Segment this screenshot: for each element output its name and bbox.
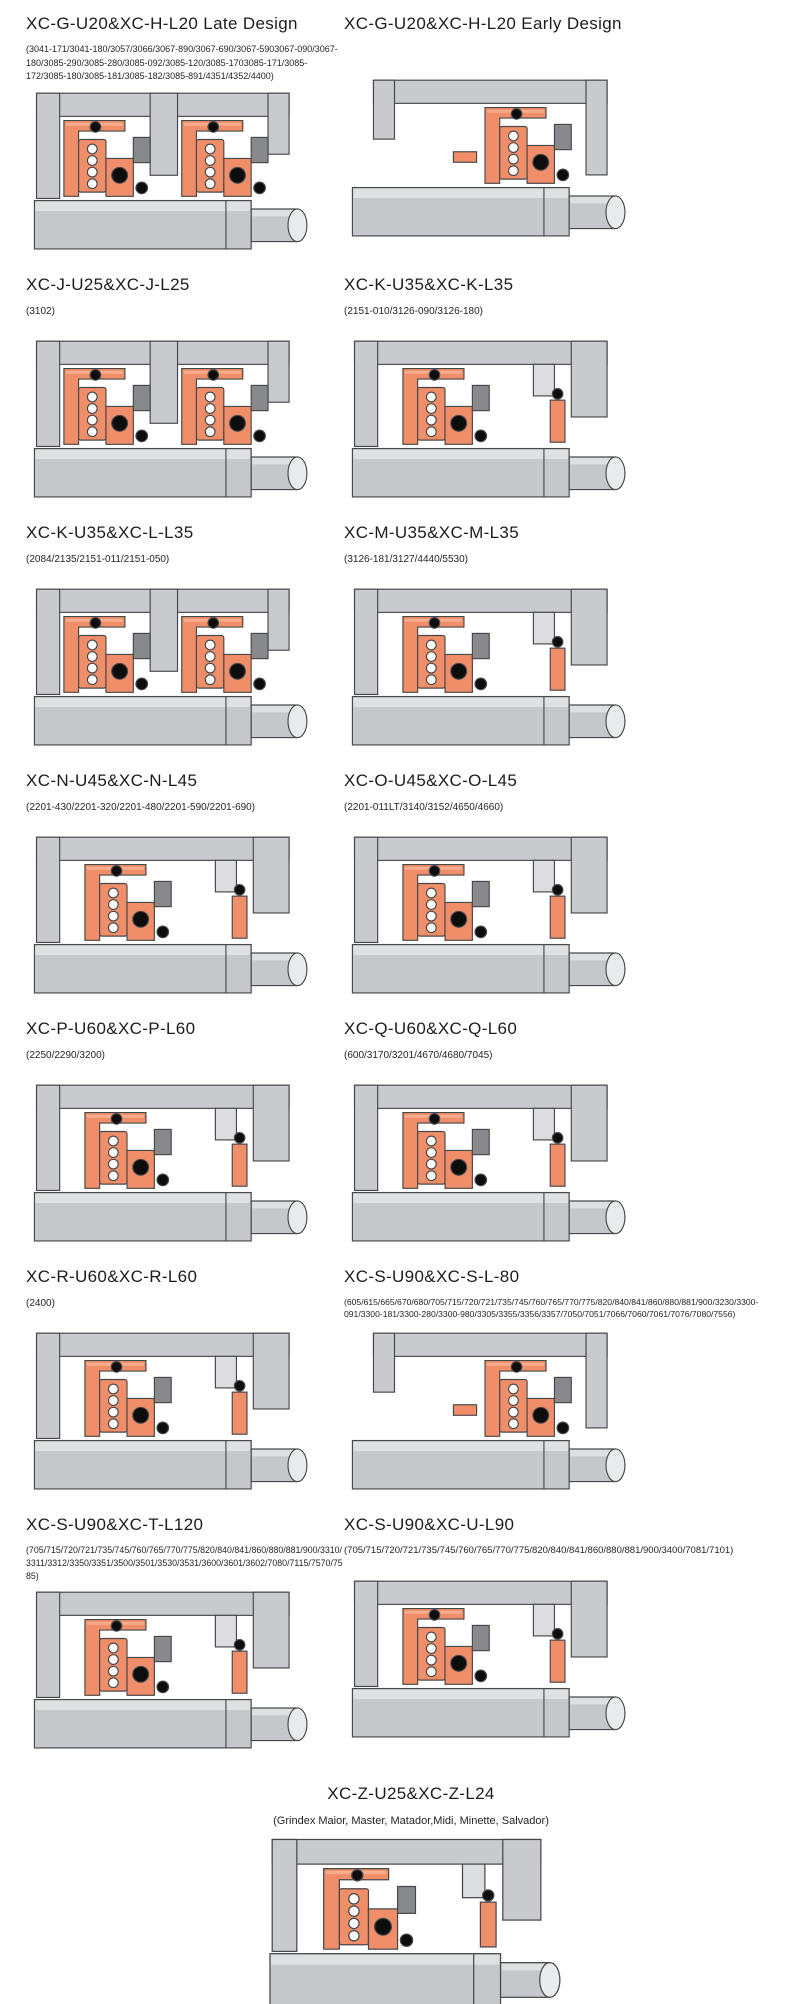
pump-housing — [37, 837, 60, 942]
pump-housing — [571, 837, 607, 913]
pump-shaft — [270, 1953, 560, 2004]
spring-coil — [426, 403, 436, 413]
pump-shaft — [352, 448, 625, 496]
drive-collar — [154, 1377, 171, 1402]
section-model-list: (3041-171/3041-180/3057/3066/3067-890/30… — [26, 43, 344, 84]
mechanical-seal-cross-section — [261, 1835, 561, 2004]
spring-coil — [87, 426, 97, 436]
section-model-list: (2201-011LT/3140/3152/4650/4660) — [344, 800, 644, 828]
o-ring — [552, 884, 563, 895]
housing-step — [533, 364, 554, 396]
section-title: XC-Q-U60&XC-Q-L60 — [344, 1019, 796, 1039]
pump-housing — [37, 341, 60, 446]
stationary-seat — [550, 1144, 565, 1186]
pump-housing — [272, 1839, 541, 1864]
spring-coil — [205, 415, 215, 425]
seal-assembly — [403, 616, 489, 692]
pump-housing — [373, 80, 607, 103]
seal-section: XC-J-U25&XC-J-L25 (3102) — [26, 269, 344, 505]
drive-collar — [133, 137, 150, 162]
spring-coil — [426, 888, 436, 898]
o-ring — [475, 1670, 487, 1682]
pump-housing — [37, 1085, 290, 1108]
seal-section: XC-G-U20&XC-H-L20 Late Design (3041-171/… — [26, 8, 344, 257]
spring-coil — [509, 1407, 519, 1417]
o-ring — [400, 1934, 412, 1946]
o-ring — [552, 1628, 563, 1639]
shaft-end-cap — [288, 208, 307, 241]
section-title: XC-G-U20&XC-H-L20 Late Design — [26, 14, 344, 34]
spring-coil — [426, 922, 436, 932]
housing-step — [533, 612, 554, 644]
pump-housing — [268, 93, 289, 154]
seal-section: XC-Q-U60&XC-Q-L60 (600/3170/3201/4670/46… — [344, 1013, 796, 1249]
section-title: XC-R-U60&XC-R-L60 — [26, 1267, 344, 1287]
section-title: XC-Z-U25&XC-Z-L24 — [327, 1784, 494, 1804]
o-ring — [511, 109, 522, 120]
pump-shaft — [352, 1192, 625, 1240]
spring-coil — [349, 1893, 359, 1903]
pump-housing — [272, 1839, 297, 1951]
section-model-list — [344, 43, 644, 71]
section-title: XC-M-U35&XC-M-L35 — [344, 523, 796, 543]
shaft-end-cap — [606, 704, 625, 737]
shaft-end-cap — [288, 456, 307, 489]
pump-shaft — [34, 696, 307, 744]
spring-coil — [108, 1678, 118, 1688]
spring-coil — [426, 426, 436, 436]
pump-housing — [571, 341, 607, 417]
spring-coil — [87, 663, 97, 673]
o-ring — [157, 1681, 169, 1693]
seal-section: XC-M-U35&XC-M-L35 (3126-181/3127/4440/55… — [344, 517, 796, 753]
spring-coil — [509, 166, 519, 176]
spring-coil — [108, 1147, 118, 1157]
drive-collar — [251, 137, 268, 162]
mechanical-seal-cross-section — [26, 337, 308, 505]
housing-step — [462, 1864, 484, 1898]
section-title: XC-K-U35&XC-L-L35 — [26, 523, 344, 543]
drive-collar — [554, 124, 571, 149]
section-model-list: (Grindex Maior, Master, Matador,Midi, Mi… — [273, 1813, 549, 1830]
section-title: XC-S-U90&XC-T-L120 — [26, 1515, 344, 1535]
pump-housing — [355, 1581, 378, 1686]
shaft-end-cap — [288, 1200, 307, 1233]
pump-housing — [355, 589, 608, 612]
spring-coil — [108, 1384, 118, 1394]
spring-coil — [509, 1384, 519, 1394]
spring-coil — [205, 674, 215, 684]
pump-housing — [37, 1333, 60, 1438]
pump-housing — [253, 1085, 289, 1161]
seal-assembly — [324, 1868, 416, 1949]
seal-assembly — [485, 108, 571, 184]
spring-coil — [87, 415, 97, 425]
stationary-seat — [550, 896, 565, 938]
drive-collar — [472, 633, 489, 658]
spring-coil — [426, 392, 436, 402]
o-ring — [230, 167, 246, 183]
pump-housing — [37, 837, 290, 860]
pump-housing — [355, 837, 378, 942]
mechanical-seal-cross-section — [26, 1081, 308, 1249]
spring-coil — [509, 131, 519, 141]
seal-assembly — [85, 864, 171, 940]
o-ring — [475, 678, 487, 690]
pump-shaft — [34, 448, 307, 496]
o-ring — [133, 1159, 149, 1175]
pump-housing — [355, 1085, 608, 1108]
pump-housing — [253, 837, 289, 913]
seal-section: XC-N-U45&XC-N-L45 (2201-430/2201-320/220… — [26, 765, 344, 1001]
mechanical-seal-cross-section — [26, 833, 308, 1001]
o-ring — [254, 430, 266, 442]
spring-coil — [108, 1407, 118, 1417]
o-ring — [157, 926, 169, 938]
o-ring — [230, 415, 246, 431]
pump-housing — [268, 341, 289, 402]
shaft-end-cap — [288, 1448, 307, 1481]
seal-assembly — [182, 120, 268, 196]
o-ring — [429, 369, 440, 380]
o-ring — [429, 1609, 440, 1620]
drive-collar — [472, 385, 489, 410]
spring-coil — [87, 651, 97, 661]
seal-assembly — [182, 368, 268, 444]
pump-housing — [37, 1592, 290, 1615]
seal-section: XC-G-U20&XC-H-L20 Early Design — [344, 8, 796, 257]
mechanical-seal-cross-section — [26, 1588, 308, 1756]
section-model-list: (2084/2135/2151-011/2151-050) — [26, 552, 326, 580]
housing-step — [215, 860, 236, 892]
stationary-seat — [550, 400, 565, 442]
mechanical-seal-cross-section — [26, 585, 308, 753]
seal-sections-grid: XC-G-U20&XC-H-L20 Late Design (3041-171/… — [0, 8, 796, 2004]
o-ring — [136, 430, 148, 442]
shaft-end-cap — [606, 1696, 625, 1729]
seal-section: XC-P-U60&XC-P-L60 (2250/2290/3200) — [26, 1013, 344, 1249]
o-ring — [557, 1422, 569, 1434]
shaft-end-cap — [606, 1200, 625, 1233]
spring-coil — [205, 640, 215, 650]
seal-assembly — [64, 616, 150, 692]
shaft-end-cap — [606, 1448, 625, 1481]
o-ring — [429, 865, 440, 876]
spring-coil — [205, 651, 215, 661]
spring-coil — [108, 1418, 118, 1428]
shaft-end-cap — [606, 456, 625, 489]
o-ring — [451, 911, 467, 927]
seal-assembly — [85, 1360, 171, 1436]
seal-section: XC-K-U35&XC-L-L35 (2084/2135/2151-011/21… — [26, 517, 344, 753]
pump-shaft — [352, 696, 625, 744]
pump-housing — [150, 589, 177, 671]
o-ring — [451, 1159, 467, 1175]
spring-coil — [426, 1170, 436, 1180]
drive-collar — [133, 633, 150, 658]
spring-coil — [108, 888, 118, 898]
spring-coil — [509, 1395, 519, 1405]
seal-section: XC-S-U90&XC-T-L120 (705/715/720/721/735/… — [26, 1509, 344, 1757]
section-title: XC-S-U90&XC-S-L-80 — [344, 1267, 796, 1287]
spring-coil — [87, 674, 97, 684]
mechanical-seal-cross-section — [344, 76, 626, 244]
section-model-list: (605/615/665/670/680/705/715/720/721/735… — [344, 1296, 796, 1324]
o-ring — [157, 1174, 169, 1186]
spring-coil — [108, 922, 118, 932]
seal-section: XC-S-U90&XC-S-L-80 (605/615/665/670/680/… — [344, 1261, 796, 1497]
seal-assembly — [182, 616, 268, 692]
pump-housing — [37, 93, 60, 198]
spring-coil — [205, 167, 215, 177]
spring-coil — [87, 403, 97, 413]
pump-housing — [355, 1085, 378, 1190]
o-ring — [451, 415, 467, 431]
o-ring — [475, 430, 487, 442]
stationary-seat — [232, 1651, 247, 1693]
o-ring — [552, 388, 563, 399]
spring-coil — [426, 1136, 436, 1146]
pump-housing — [586, 1333, 607, 1428]
o-ring — [375, 1918, 392, 1935]
pump-housing — [586, 80, 607, 175]
o-ring — [475, 1174, 487, 1186]
spring-coil — [426, 415, 436, 425]
mechanical-seal-cross-section — [344, 585, 626, 753]
pump-housing — [571, 589, 607, 665]
pump-housing — [355, 589, 378, 694]
spring-coil — [426, 674, 436, 684]
housing-step — [215, 1615, 236, 1647]
spring-coil — [108, 1655, 118, 1665]
housing-step — [215, 1108, 236, 1140]
o-ring — [90, 369, 101, 380]
pump-housing — [373, 80, 394, 139]
spring-coil — [87, 178, 97, 188]
o-ring — [234, 1380, 245, 1391]
shaft-end-cap — [606, 952, 625, 985]
o-ring — [483, 1889, 494, 1900]
shaft-end-cap — [606, 196, 625, 229]
pump-shaft — [34, 1440, 307, 1488]
pump-shaft — [352, 1688, 625, 1736]
spring-coil — [205, 392, 215, 402]
mechanical-seal-cross-section — [344, 1081, 626, 1249]
o-ring — [111, 1361, 122, 1372]
spring-coil — [205, 403, 215, 413]
shaft-end-cap — [288, 1708, 307, 1741]
seal-assembly — [403, 864, 489, 940]
pump-shaft — [34, 200, 307, 248]
o-ring — [429, 1113, 440, 1124]
section-title: XC-J-U25&XC-J-L25 — [26, 275, 344, 295]
spring-coil — [87, 167, 97, 177]
spring-coil — [349, 1906, 359, 1916]
stationary-seat — [232, 1392, 247, 1434]
shaft-end-cap — [288, 952, 307, 985]
drive-collar — [133, 385, 150, 410]
drive-collar — [472, 1129, 489, 1154]
seal-sleeve — [453, 152, 476, 163]
mechanical-seal-cross-section — [26, 1329, 308, 1497]
o-ring — [552, 636, 563, 647]
spring-coil — [426, 1147, 436, 1157]
o-ring — [208, 121, 219, 132]
pump-housing — [571, 1581, 607, 1657]
section-title: XC-S-U90&XC-U-L90 — [344, 1515, 796, 1535]
shaft-end-cap — [288, 704, 307, 737]
o-ring — [451, 663, 467, 679]
seal-assembly — [403, 368, 489, 444]
seal-assembly — [403, 1608, 489, 1684]
pump-housing — [37, 1592, 60, 1697]
section-model-list: (3126-181/3127/4440/5530) — [344, 552, 644, 580]
seal-sleeve — [453, 1404, 476, 1415]
spring-coil — [349, 1930, 359, 1940]
spring-coil — [108, 899, 118, 909]
section-title: XC-O-U45&XC-O-L45 — [344, 771, 796, 791]
seal-assembly — [403, 1112, 489, 1188]
shaft-end-cap — [540, 1962, 560, 1997]
spring-coil — [205, 178, 215, 188]
seal-assembly — [64, 368, 150, 444]
pump-housing — [150, 93, 177, 175]
spring-coil — [87, 640, 97, 650]
pump-housing — [37, 1333, 290, 1356]
catalog-page: XC-G-U20&XC-H-L20 Late Design (3041-171/… — [0, 0, 796, 2004]
spring-coil — [205, 155, 215, 165]
drive-collar — [154, 881, 171, 906]
o-ring — [254, 182, 266, 194]
pump-housing — [37, 1085, 60, 1190]
mechanical-seal-cross-section — [344, 833, 626, 1001]
pump-housing — [253, 1333, 289, 1409]
spring-coil — [509, 143, 519, 153]
pump-housing — [355, 341, 608, 364]
o-ring — [133, 1666, 149, 1682]
stationary-seat — [232, 896, 247, 938]
pump-housing — [373, 1333, 394, 1392]
seal-section: XC-O-U45&XC-O-L45 (2201-011LT/3140/3152/… — [344, 765, 796, 1001]
o-ring — [475, 926, 487, 938]
stationary-seat — [550, 648, 565, 690]
o-ring — [111, 1621, 122, 1632]
mechanical-seal-cross-section — [344, 1329, 626, 1497]
spring-coil — [426, 1159, 436, 1169]
seal-assembly — [64, 120, 150, 196]
o-ring — [112, 415, 128, 431]
drive-collar — [154, 1636, 171, 1661]
pump-housing — [373, 1333, 607, 1356]
section-model-list: (2250/2290/3200) — [26, 1048, 326, 1076]
spring-coil — [108, 1159, 118, 1169]
spring-coil — [108, 1170, 118, 1180]
pump-housing — [355, 1581, 608, 1604]
o-ring — [90, 617, 101, 628]
housing-step — [533, 860, 554, 892]
seal-assembly — [85, 1620, 171, 1696]
pump-housing — [355, 837, 608, 860]
pump-shaft — [34, 1192, 307, 1240]
spring-coil — [205, 426, 215, 436]
stationary-seat — [232, 1144, 247, 1186]
mechanical-seal-cross-section — [344, 337, 626, 505]
section-title: XC-G-U20&XC-H-L20 Early Design — [344, 14, 796, 34]
spring-coil — [108, 1136, 118, 1146]
spring-coil — [426, 1632, 436, 1642]
section-model-list: (705/715/720/721/735/745/760/765/770/775… — [344, 1544, 784, 1572]
spring-coil — [205, 663, 215, 673]
o-ring — [352, 1869, 363, 1880]
o-ring — [112, 663, 128, 679]
mechanical-seal-cross-section — [26, 89, 308, 257]
pump-housing — [150, 341, 177, 423]
seal-section: XC-K-U35&XC-K-L35 (2151-010/3126-090/312… — [344, 269, 796, 505]
spring-coil — [426, 651, 436, 661]
o-ring — [254, 678, 266, 690]
spring-coil — [426, 1666, 436, 1676]
o-ring — [111, 865, 122, 876]
o-ring — [451, 1655, 467, 1671]
housing-step — [215, 1356, 236, 1388]
pump-shaft — [34, 1700, 307, 1748]
spring-coil — [426, 663, 436, 673]
o-ring — [234, 884, 245, 895]
seal-assembly — [485, 1360, 571, 1436]
pump-housing — [253, 1592, 289, 1668]
spring-coil — [509, 1418, 519, 1428]
spring-coil — [426, 640, 436, 650]
drive-collar — [154, 1129, 171, 1154]
section-model-list: (2201-430/2201-320/2201-480/2201-590/220… — [26, 800, 326, 828]
o-ring — [230, 663, 246, 679]
stationary-seat — [550, 1640, 565, 1682]
o-ring — [533, 154, 549, 170]
o-ring — [111, 1113, 122, 1124]
spring-coil — [108, 911, 118, 921]
housing-step — [533, 1604, 554, 1636]
section-title: XC-P-U60&XC-P-L60 — [26, 1019, 344, 1039]
seal-section: XC-Z-U25&XC-Z-L24 (Grindex Maior, Master… — [26, 1778, 796, 2004]
section-model-list: (2400) — [26, 1296, 326, 1324]
spring-coil — [108, 1643, 118, 1653]
drive-collar — [251, 633, 268, 658]
pump-housing — [571, 1085, 607, 1161]
o-ring — [133, 911, 149, 927]
spring-coil — [108, 1395, 118, 1405]
spring-coil — [205, 144, 215, 154]
seal-assembly — [85, 1112, 171, 1188]
o-ring — [511, 1361, 522, 1372]
o-ring — [234, 1640, 245, 1651]
drive-collar — [472, 881, 489, 906]
spring-coil — [87, 155, 97, 165]
section-title: XC-K-U35&XC-K-L35 — [344, 275, 796, 295]
o-ring — [136, 182, 148, 194]
section-model-list: (600/3170/3201/4670/4680/7045) — [344, 1048, 644, 1076]
drive-collar — [398, 1886, 416, 1913]
spring-coil — [509, 154, 519, 164]
section-model-list: (705/715/720/721/735/745/760/765/770/775… — [26, 1544, 344, 1584]
spring-coil — [426, 1655, 436, 1665]
seal-section: XC-R-U60&XC-R-L60 (2400) — [26, 1261, 344, 1497]
o-ring — [234, 1132, 245, 1143]
o-ring — [133, 1407, 149, 1423]
pump-shaft — [34, 944, 307, 992]
pump-housing — [355, 341, 378, 446]
o-ring — [208, 617, 219, 628]
drive-collar — [554, 1377, 571, 1402]
